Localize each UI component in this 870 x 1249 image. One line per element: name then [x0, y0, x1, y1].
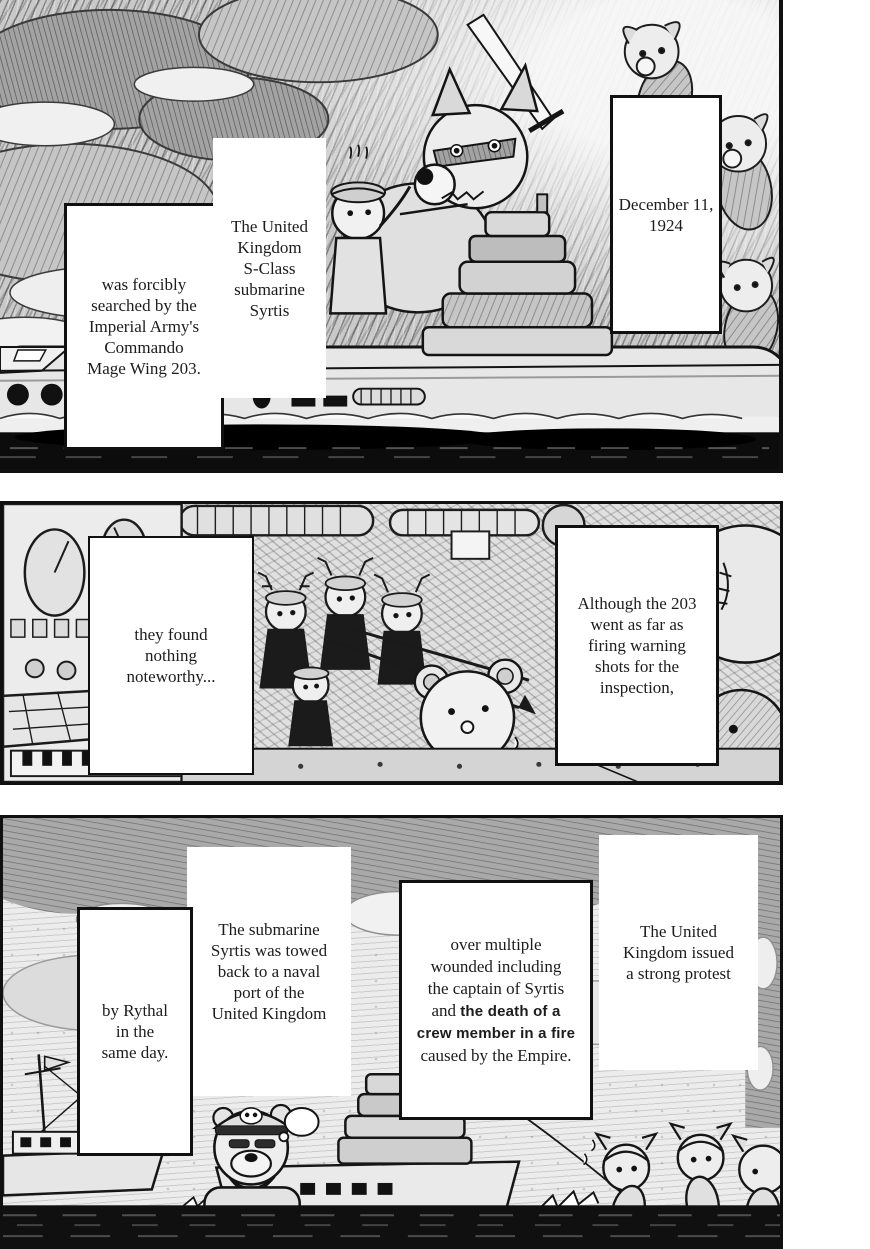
panel-3: The submarine Syrtis was towed back to a… — [0, 815, 783, 1249]
caption-segment-bold: the death of a — [460, 1003, 560, 1020]
caption-line: wounded including — [431, 956, 562, 978]
caption-line: the captain of Syrtis — [428, 978, 564, 1000]
dark-sea-art — [3, 1205, 780, 1249]
caption-towed: The submarine Syrtis was towed back to a… — [187, 847, 351, 1096]
manga-page: was forcibly searched by the Imperial Ar… — [0, 0, 870, 1249]
caption-rythal: by Rythal in the same day. — [77, 907, 193, 1156]
caption-wounded: over multiple wounded including the capt… — [399, 880, 593, 1120]
caption-line-bold: crew member in a fire — [417, 1023, 575, 1045]
caption-although: Although the 203 went as far as firing w… — [555, 525, 719, 766]
caption-submarine: The United Kingdom S-Class submarine Syr… — [213, 138, 326, 398]
caption-found-nothing: they found nothing noteworthy... — [88, 536, 254, 775]
caption-line: over multiple — [450, 934, 541, 956]
caption-protest: The United Kingdom issued a strong prote… — [599, 835, 758, 1070]
caption-line: and the death of a — [431, 1000, 560, 1023]
caption-line: caused by the Empire. — [420, 1045, 571, 1067]
panel-1: was forcibly searched by the Imperial Ar… — [0, 0, 783, 473]
caption-searched: was forcibly searched by the Imperial Ar… — [64, 203, 224, 450]
caption-segment: and — [431, 1001, 460, 1020]
panel-2: they found nothing noteworthy... Althoug… — [0, 501, 783, 785]
caption-date: December 11, 1924 — [610, 95, 722, 334]
